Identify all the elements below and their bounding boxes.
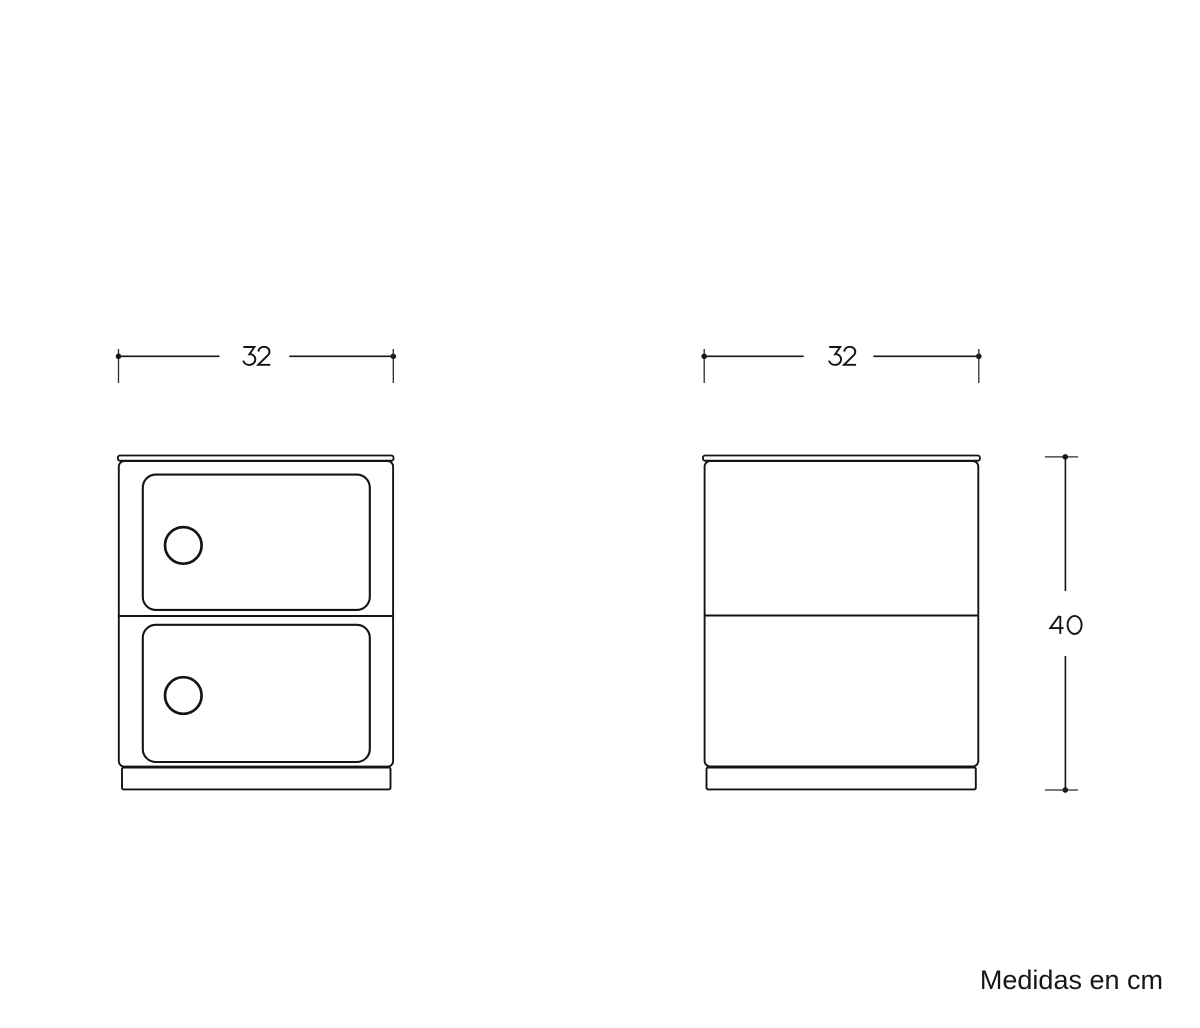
svg-text:Medidas en cm: Medidas en cm bbox=[980, 965, 1163, 995]
